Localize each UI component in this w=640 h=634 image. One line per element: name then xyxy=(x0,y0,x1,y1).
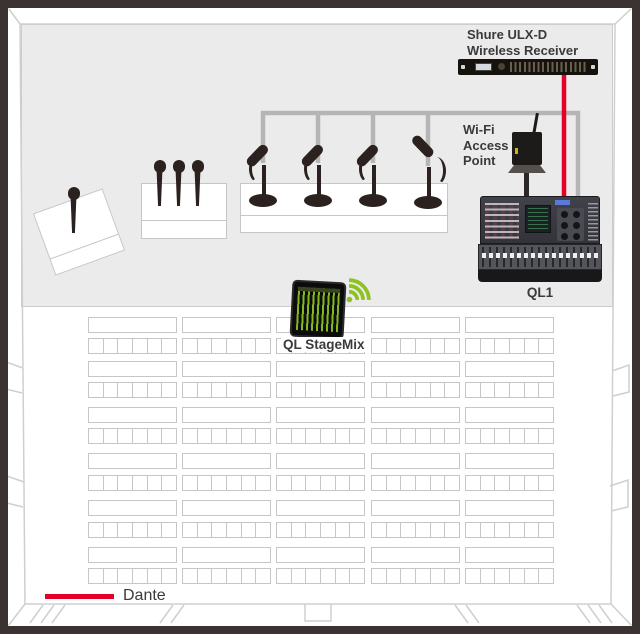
audience-seat xyxy=(386,383,401,397)
audience-seat xyxy=(480,523,495,537)
audience-seat xyxy=(89,429,103,443)
audience-seat xyxy=(349,569,364,583)
audience-seat-row xyxy=(465,382,554,398)
audience-table xyxy=(371,453,460,469)
audience-seat xyxy=(89,476,103,490)
audience-seat-row xyxy=(276,475,365,491)
audience-seat xyxy=(226,476,241,490)
console-label: QL1 xyxy=(478,285,602,300)
audience-seat-row xyxy=(465,568,554,584)
audience-seat xyxy=(538,569,553,583)
audience-seat xyxy=(226,339,241,353)
audience-table xyxy=(88,361,177,377)
wireless-receiver xyxy=(458,59,598,75)
audience-seat-row xyxy=(182,428,271,444)
stagemix-tablet xyxy=(290,280,347,340)
audience-seat-row xyxy=(182,475,271,491)
audience-seat xyxy=(335,383,350,397)
audience-seat-row xyxy=(88,568,177,584)
audience-table xyxy=(276,407,365,423)
audience-seat-row xyxy=(182,522,271,538)
lectern-edge xyxy=(50,234,118,260)
audience-seat xyxy=(183,569,197,583)
audience-seat-row xyxy=(276,522,365,538)
audience-seat xyxy=(132,429,147,443)
audience-table xyxy=(465,407,554,423)
audience-seat-row xyxy=(465,475,554,491)
audience-seat xyxy=(400,429,415,443)
audience-seat xyxy=(103,339,118,353)
audience-seat xyxy=(161,476,176,490)
audience-seat xyxy=(291,429,306,443)
audience-seat xyxy=(183,339,197,353)
audience-seat xyxy=(277,383,291,397)
audience-seat xyxy=(147,383,162,397)
door-notch-right-2 xyxy=(610,480,628,511)
audience-seat xyxy=(494,523,509,537)
desk-microphone xyxy=(353,143,393,207)
audience-seat xyxy=(89,569,103,583)
audience-seat-row xyxy=(371,475,460,491)
door-notch-left-1 xyxy=(6,362,23,393)
audience-seat-row xyxy=(88,522,177,538)
audience-seat xyxy=(241,476,256,490)
audience-seat xyxy=(494,569,509,583)
console-fader-bank xyxy=(478,244,602,270)
wifi-signal-icon xyxy=(344,276,374,304)
audience-table xyxy=(465,453,554,469)
audience-seat xyxy=(197,569,212,583)
audience-seat xyxy=(335,569,350,583)
audience-seat xyxy=(524,569,539,583)
audience-seat xyxy=(335,429,350,443)
audience-seat xyxy=(320,429,335,443)
audience-seat xyxy=(291,476,306,490)
audience-table xyxy=(88,500,177,516)
audience-seat xyxy=(117,339,132,353)
ap-stand-pole xyxy=(524,173,529,198)
audience-seat xyxy=(444,429,459,443)
audience-seat xyxy=(132,383,147,397)
audience-seat xyxy=(320,476,335,490)
audience-seat xyxy=(466,476,480,490)
audience-seat xyxy=(430,339,445,353)
audience-seat xyxy=(400,476,415,490)
audience-seat xyxy=(538,523,553,537)
audience-seat xyxy=(147,476,162,490)
audience-seat xyxy=(226,429,241,443)
audience-seat xyxy=(277,476,291,490)
audience-seat xyxy=(466,569,480,583)
audience-seat xyxy=(226,569,241,583)
door-marks-bottom xyxy=(30,604,612,623)
audience-table xyxy=(465,317,554,333)
audience-seat xyxy=(161,339,176,353)
audience-seat-row xyxy=(371,568,460,584)
audience-seat xyxy=(197,523,212,537)
door-notch-left-2 xyxy=(7,476,24,507)
wifi-ap-label: Wi-Fi Access Point xyxy=(463,122,509,169)
audience-seat xyxy=(89,523,103,537)
console-knob-panel xyxy=(557,208,584,241)
audience-table xyxy=(276,453,365,469)
audience-seat xyxy=(524,383,539,397)
audience-table xyxy=(88,407,177,423)
audience-seat xyxy=(444,339,459,353)
audience-seat xyxy=(305,476,320,490)
audience-seat xyxy=(226,523,241,537)
audience-seat xyxy=(386,523,401,537)
console-button-grid xyxy=(485,203,519,239)
audience-seat xyxy=(277,523,291,537)
audience-table xyxy=(182,317,271,333)
audience-seat-row xyxy=(182,338,271,354)
audience-seat xyxy=(255,476,270,490)
audience-seat xyxy=(277,429,291,443)
mixing-console xyxy=(478,196,602,282)
audience-seat xyxy=(444,476,459,490)
audience-seat xyxy=(466,523,480,537)
audience-seat xyxy=(494,339,509,353)
audience-seat xyxy=(117,429,132,443)
audience-seat xyxy=(161,429,176,443)
audience-seat xyxy=(103,429,118,443)
audience-table xyxy=(371,500,460,516)
audience-table xyxy=(182,407,271,423)
audience-seat xyxy=(132,476,147,490)
audience-seat xyxy=(211,569,226,583)
audience-seat-row xyxy=(465,522,554,538)
audience-seat xyxy=(161,569,176,583)
audience-table xyxy=(371,317,460,333)
audience-seat xyxy=(147,523,162,537)
audience-seat xyxy=(466,383,480,397)
audience-seat xyxy=(320,383,335,397)
audience-seat xyxy=(524,429,539,443)
audience-seat xyxy=(349,476,364,490)
audience-seat xyxy=(509,339,524,353)
audience-seat-row xyxy=(371,522,460,538)
audience-table xyxy=(465,500,554,516)
audience-seat xyxy=(509,569,524,583)
audience-table xyxy=(371,407,460,423)
audience-seat xyxy=(255,569,270,583)
audience-seat xyxy=(255,429,270,443)
audience-seat xyxy=(538,339,553,353)
audience-seat xyxy=(211,339,226,353)
audience-seat xyxy=(480,429,495,443)
audience-seat xyxy=(415,476,430,490)
audience-seat xyxy=(480,569,495,583)
desk-microphone xyxy=(243,143,283,207)
audience-seat-row xyxy=(88,382,177,398)
audience-seat xyxy=(480,339,495,353)
audience-seat xyxy=(372,523,386,537)
audience-seat xyxy=(255,383,270,397)
audience-seat xyxy=(241,523,256,537)
audience-seat xyxy=(509,476,524,490)
audience-table xyxy=(465,361,554,377)
audience-seat xyxy=(226,383,241,397)
audience-seat xyxy=(538,429,553,443)
audience-seat xyxy=(372,429,386,443)
audience-seat xyxy=(400,569,415,583)
dante-legend-label: Dante xyxy=(123,587,166,605)
audience-seat xyxy=(444,523,459,537)
ap-status-led xyxy=(515,148,518,154)
audience-seat xyxy=(415,339,430,353)
audience-seat xyxy=(466,429,480,443)
audience-seat xyxy=(430,476,445,490)
audience-seat xyxy=(241,383,256,397)
audience-seat xyxy=(400,339,415,353)
audience-seat xyxy=(161,383,176,397)
audience-seat xyxy=(480,383,495,397)
handheld-microphone xyxy=(172,160,185,208)
audience-seat-row xyxy=(276,382,365,398)
console-top-panel xyxy=(480,196,600,244)
audience-seat xyxy=(103,523,118,537)
audience-seat xyxy=(147,429,162,443)
door-notch-right-1 xyxy=(612,365,629,396)
audience-seat xyxy=(305,429,320,443)
audience-table xyxy=(371,361,460,377)
audience-seat xyxy=(386,476,401,490)
audience-seat xyxy=(335,523,350,537)
audience-seat xyxy=(241,569,256,583)
audience-seat xyxy=(305,523,320,537)
audience-seat xyxy=(117,476,132,490)
audience-table xyxy=(371,547,460,563)
audience-seat xyxy=(132,339,147,353)
audience-seat-row xyxy=(276,568,365,584)
audience-seat xyxy=(197,476,212,490)
audience-seat xyxy=(494,383,509,397)
audience-seat xyxy=(538,476,553,490)
handheld-microphone xyxy=(153,160,166,208)
audience-seat xyxy=(349,523,364,537)
audience-table xyxy=(276,361,365,377)
audience-seat xyxy=(538,383,553,397)
audience-seat xyxy=(117,383,132,397)
audience-seat xyxy=(132,569,147,583)
audience-seat xyxy=(117,523,132,537)
console-base xyxy=(478,270,602,282)
audience-seat xyxy=(509,383,524,397)
audience-seat xyxy=(415,569,430,583)
audience-seat xyxy=(400,523,415,537)
audience-seat xyxy=(430,569,445,583)
audience-seat xyxy=(197,429,212,443)
audience-seat xyxy=(291,383,306,397)
audience-seat xyxy=(430,429,445,443)
audience-table xyxy=(465,547,554,563)
audience-seat xyxy=(372,339,386,353)
audience-seat xyxy=(211,476,226,490)
audience-seat xyxy=(291,569,306,583)
audience-seat xyxy=(444,383,459,397)
head-table-edge xyxy=(241,215,447,216)
audience-seat xyxy=(103,383,118,397)
audience-seat xyxy=(211,383,226,397)
audience-table xyxy=(88,453,177,469)
stagemix-screen xyxy=(295,286,341,333)
stagemix-label: QL StageMix xyxy=(281,337,367,352)
audience-seat xyxy=(211,523,226,537)
audience-table xyxy=(182,361,271,377)
audience-seat xyxy=(320,569,335,583)
audience-seat-row xyxy=(465,428,554,444)
audience-seat xyxy=(132,523,147,537)
audience-seat-row xyxy=(371,338,460,354)
audience-table xyxy=(276,547,365,563)
audience-seat-row xyxy=(371,428,460,444)
audience-seat xyxy=(255,523,270,537)
audience-table xyxy=(276,500,365,516)
audience-seat-row xyxy=(182,568,271,584)
audience-seat xyxy=(183,523,197,537)
audience-seat xyxy=(386,339,401,353)
console-screen xyxy=(525,205,551,233)
audience-seat xyxy=(211,429,226,443)
audience-seat xyxy=(89,339,103,353)
audience-seat xyxy=(197,339,212,353)
audience-seat xyxy=(103,569,118,583)
audience-seat xyxy=(103,476,118,490)
receiver-display xyxy=(475,63,492,71)
audience-seat xyxy=(466,339,480,353)
audience-seat xyxy=(415,523,430,537)
desk-microphone xyxy=(298,143,338,207)
receiver-label: Shure ULX-D Wireless Receiver xyxy=(467,27,578,59)
audience-seat xyxy=(89,383,103,397)
audience-seat xyxy=(524,476,539,490)
console-meter-bridge xyxy=(588,203,598,241)
audience-seat xyxy=(305,569,320,583)
audience-seat xyxy=(372,476,386,490)
audience-seat xyxy=(241,429,256,443)
handheld-microphone xyxy=(67,187,80,235)
audience-seat xyxy=(480,476,495,490)
audience-seat xyxy=(430,383,445,397)
audience-seat xyxy=(147,339,162,353)
ap-stand xyxy=(508,165,546,173)
receiver-knob xyxy=(498,63,505,70)
audience-seat xyxy=(147,569,162,583)
audience-seat xyxy=(349,383,364,397)
audience-table xyxy=(88,317,177,333)
audience-table xyxy=(182,500,271,516)
audience-seat xyxy=(400,383,415,397)
audience-seat xyxy=(509,429,524,443)
audience-seat-row xyxy=(88,475,177,491)
mic-body xyxy=(68,198,80,233)
audience-seat-row xyxy=(465,338,554,354)
audience-seat xyxy=(430,523,445,537)
audience-seat xyxy=(386,429,401,443)
audience-seat xyxy=(494,429,509,443)
audience-seat xyxy=(524,523,539,537)
audience-seat xyxy=(494,476,509,490)
mic-box-edge xyxy=(142,220,226,221)
audience-seat-row xyxy=(88,338,177,354)
audience-seat xyxy=(415,429,430,443)
audience-seat-row xyxy=(182,382,271,398)
audience-seat xyxy=(197,383,212,397)
audience-seat xyxy=(161,523,176,537)
audience-seat xyxy=(509,523,524,537)
audience-table xyxy=(88,547,177,563)
audience-seat xyxy=(291,523,306,537)
audience-seat xyxy=(183,476,197,490)
audience-seat xyxy=(372,569,386,583)
audience-seat xyxy=(183,383,197,397)
room-diagram: Shure ULX-D Wireless Receiver Wi-Fi Acce… xyxy=(0,0,640,634)
audience-seat xyxy=(117,569,132,583)
fader-caps xyxy=(482,253,600,258)
audience-seat xyxy=(277,569,291,583)
audience-seat-row xyxy=(276,428,365,444)
audience-seat xyxy=(372,383,386,397)
console-display xyxy=(555,200,570,205)
audience-table xyxy=(182,453,271,469)
audience-seat xyxy=(241,339,256,353)
audience-seat xyxy=(444,569,459,583)
audience-seat xyxy=(320,523,335,537)
audience-seat xyxy=(255,339,270,353)
audience-seat xyxy=(183,429,197,443)
audience-seat xyxy=(386,569,401,583)
audience-table xyxy=(182,547,271,563)
receiver-channel-leds xyxy=(510,62,588,72)
audience-seat xyxy=(524,339,539,353)
audience-seat-row xyxy=(88,428,177,444)
audience-seat-row xyxy=(371,382,460,398)
audience-seat xyxy=(349,429,364,443)
audience-seat xyxy=(415,383,430,397)
audience-seat xyxy=(335,476,350,490)
handheld-microphone xyxy=(191,160,204,208)
audience-seat xyxy=(305,383,320,397)
desk-microphone xyxy=(408,145,448,209)
